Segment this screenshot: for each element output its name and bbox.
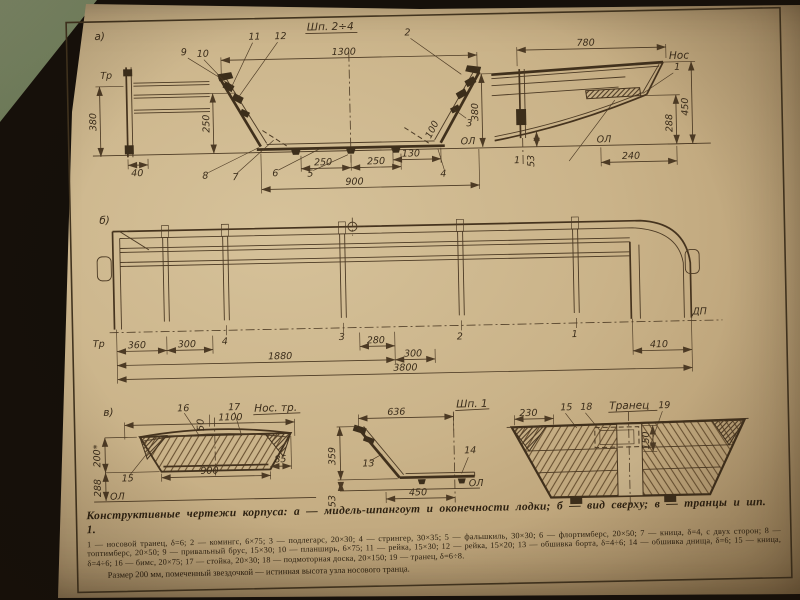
dim-380-right: 380 <box>470 103 481 121</box>
label-ol-profile: ОЛ <box>597 134 612 145</box>
callout-11: 11 <box>248 32 260 43</box>
dim-250-vert: 250 <box>201 114 212 132</box>
panel-label-b: б) <box>99 215 110 227</box>
photographed-book-page: а) Тр 380 <box>0 0 800 600</box>
stern-transom-edge-detail: Тр 380 40 <box>87 66 211 181</box>
stern-transom-view: 230 15 18 Транец 19 <box>506 397 750 507</box>
dim-3800: 3800 <box>393 362 417 374</box>
label-ol-midship: ОЛ <box>461 136 476 147</box>
dim-900-bow: 900 <box>200 465 218 476</box>
dim-1300: 1300 <box>332 47 356 59</box>
dim-85: 85 <box>274 454 286 465</box>
callout-17: 17 <box>228 402 240 413</box>
callout-6: 6 <box>272 168 278 179</box>
section-title: Шп. 2÷4 <box>307 21 354 34</box>
figure-caption-block: Конструктивные чертежи корпуса: а — миде… <box>86 495 781 581</box>
stern-handle <box>97 257 111 281</box>
bow-profile-view: 780 Нос 1 380 ОЛ <box>469 35 698 169</box>
label-tr-plan: Тр <box>93 339 105 350</box>
dim-200-star: 200* <box>92 444 103 467</box>
callout-19: 19 <box>658 400 670 411</box>
dim-450: 450 <box>680 97 691 115</box>
dim-360: 360 <box>128 340 146 351</box>
frame1-tick: 1 <box>514 155 520 166</box>
dim-280: 280 <box>367 335 385 346</box>
dim-250-b: 250 <box>367 156 385 167</box>
callout-8: 8 <box>202 171 208 182</box>
dim-1880: 1880 <box>268 351 292 363</box>
callout-15-bow: 15 <box>122 473 134 484</box>
dim-300-b: 300 <box>404 348 422 359</box>
dim-450-frame1: 450 <box>409 487 427 498</box>
frame-2: 2 <box>457 331 463 342</box>
dim-50: 50 <box>195 419 206 431</box>
page-content: а) Тр 380 <box>0 0 800 600</box>
frame-3: 3 <box>339 332 345 343</box>
callout-10: 10 <box>197 49 209 60</box>
frame-stations <box>161 217 580 322</box>
bow-transom-view: в) 1100 50 16 17 Нос. тр. <box>91 400 316 503</box>
frame-1: 1 <box>572 329 578 340</box>
panel-label-a: а) <box>94 31 105 43</box>
callout-13: 13 <box>362 458 374 469</box>
dim-300-a: 300 <box>178 339 196 350</box>
callout-12: 12 <box>274 31 286 42</box>
callout-1: 1 <box>674 62 680 73</box>
frame1-section-view: 636 Шп. 1 359 13 14 <box>325 398 491 507</box>
dim-900: 900 <box>345 176 363 187</box>
stringer-lines <box>120 238 630 267</box>
dim-380-left: 380 <box>88 113 99 131</box>
dim-240: 240 <box>622 151 640 162</box>
callout-18: 18 <box>580 402 592 413</box>
dim-250-a: 250 <box>314 157 332 168</box>
bow-handle <box>685 249 699 273</box>
callout-4: 4 <box>440 169 446 180</box>
label-tr: Тр <box>100 71 112 82</box>
label-nos: Нос <box>669 50 690 62</box>
callout-5: 5 <box>307 168 313 179</box>
dim-53: 53 <box>526 155 537 167</box>
frame1-title: Шп. 1 <box>456 398 488 411</box>
midship-hull-section <box>217 50 483 166</box>
dim-636: 636 <box>387 407 405 418</box>
centerline-dp <box>110 320 723 333</box>
dim-288-bow: 288 <box>93 479 104 497</box>
dim-780: 780 <box>576 38 594 49</box>
callout-9: 9 <box>181 47 187 58</box>
part-callouts-top: 9 10 11 12 2 3 <box>180 26 472 135</box>
callout-16: 16 <box>177 403 189 414</box>
dim-410: 410 <box>650 339 668 350</box>
dim-288: 288 <box>664 114 675 132</box>
dim-359: 359 <box>327 447 338 465</box>
dim-100: 100 <box>423 119 441 140</box>
dim-1100: 1100 <box>218 412 242 424</box>
label-ol-frame1: ОЛ <box>469 478 484 489</box>
callout-2: 2 <box>404 27 410 38</box>
label-dp: ДП <box>691 306 707 317</box>
stern-transom-title: Транец <box>609 399 649 412</box>
dim-150: 150 <box>641 431 652 449</box>
callout-14: 14 <box>464 445 476 456</box>
callout-15-stern: 15 <box>560 402 572 413</box>
dim-130: 130 <box>402 148 420 159</box>
plan-view: б) <box>90 202 723 384</box>
panel-label-v: в) <box>103 407 114 419</box>
dim-40: 40 <box>131 168 143 179</box>
dim-230: 230 <box>519 408 537 419</box>
frame-4: 4 <box>222 336 228 347</box>
callout-7: 7 <box>232 172 238 183</box>
